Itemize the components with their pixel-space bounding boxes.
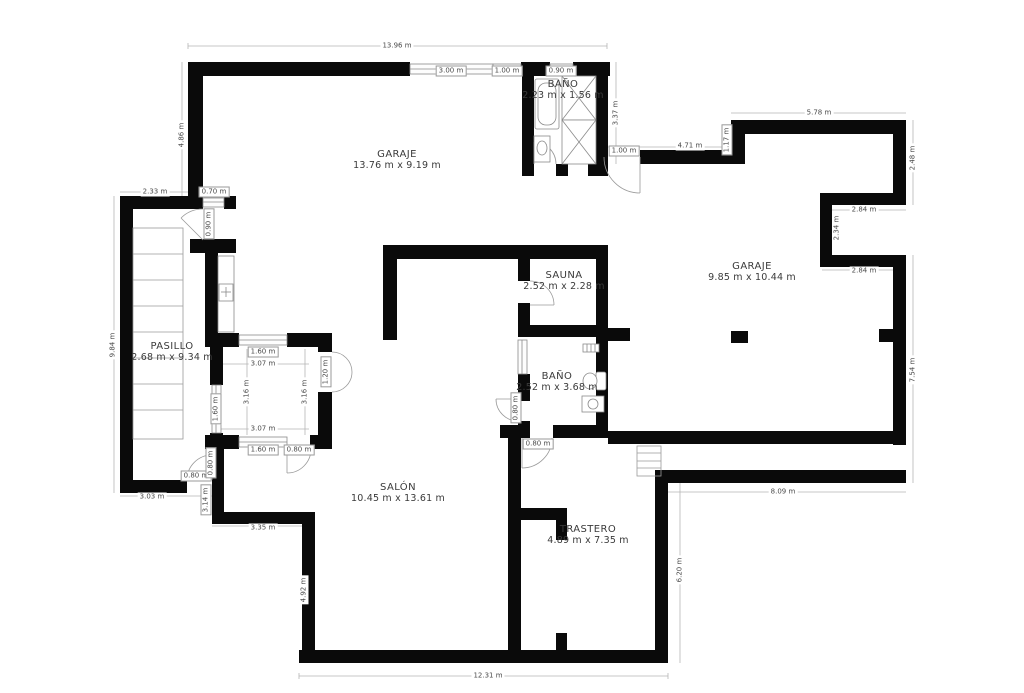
washbasin-icon bbox=[582, 396, 604, 412]
toilet-icon bbox=[583, 372, 606, 390]
bathtub-icon bbox=[535, 79, 559, 129]
radiator-icon bbox=[583, 344, 599, 352]
floor-plan-canvas: GARAJE13.76 m x 9.19 mBAÑO2.23 m x 1.56 … bbox=[0, 0, 1024, 693]
fixtures bbox=[218, 76, 606, 412]
pasillo-stairs bbox=[133, 228, 183, 439]
walls bbox=[120, 62, 906, 663]
sink-icon bbox=[534, 136, 550, 162]
kitchen-counter bbox=[218, 256, 234, 332]
shower-icon bbox=[562, 76, 596, 164]
floor-plan bbox=[0, 0, 1024, 693]
